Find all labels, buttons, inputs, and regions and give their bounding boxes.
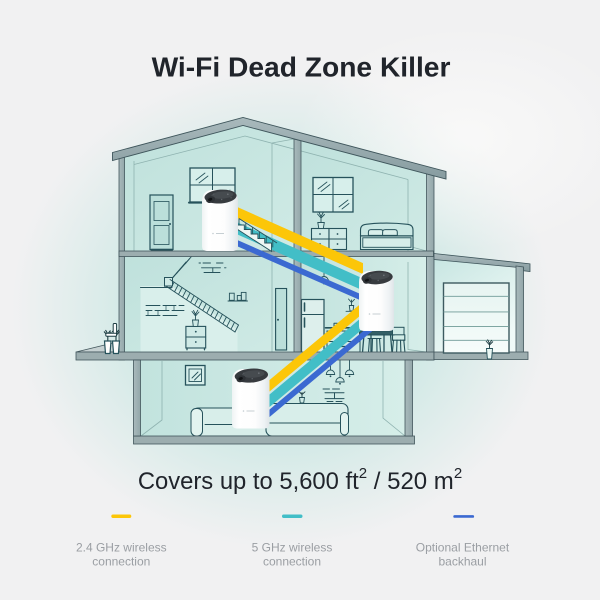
svg-text:connection: connection	[263, 554, 321, 568]
svg-text:Wi-Fi Dead Zone Killer: Wi-Fi Dead Zone Killer	[152, 51, 451, 83]
svg-text:Covers up to 5,600 ft2 / 520 m: Covers up to 5,600 ft2 / 520 m2	[138, 465, 462, 495]
svg-text:5 GHz wireless: 5 GHz wireless	[252, 540, 333, 554]
svg-text:connection: connection	[92, 554, 150, 568]
svg-text:Optional Ethernet: Optional Ethernet	[416, 540, 510, 554]
svg-text:2.4 GHz wireless: 2.4 GHz wireless	[76, 540, 167, 554]
svg-text:backhaul: backhaul	[438, 554, 486, 568]
